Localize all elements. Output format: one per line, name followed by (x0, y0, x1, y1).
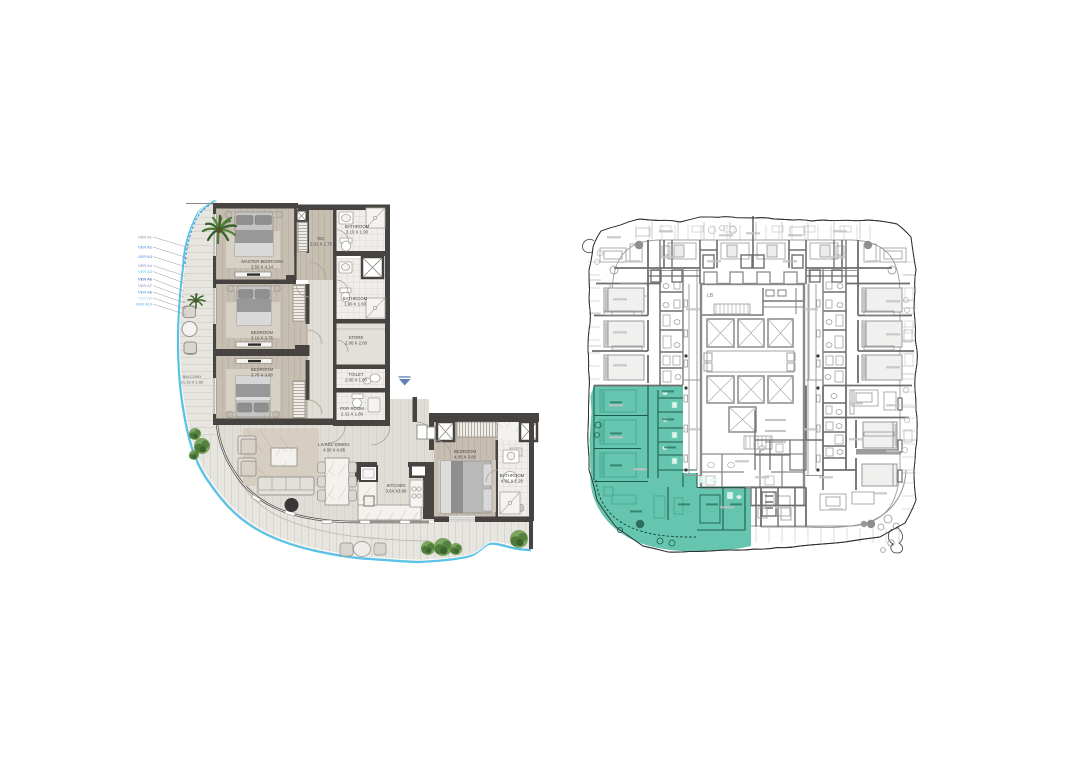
svg-text:VER A5: VER A5 (138, 269, 153, 274)
svg-text:VER A1: VER A1 (138, 235, 153, 240)
svg-text:MASTER BEDROOM: MASTER BEDROOM (241, 259, 283, 264)
svg-text:VER A3: VER A3 (138, 254, 153, 259)
svg-text:VER A7: VER A7 (138, 283, 153, 288)
svg-text:VER A6: VER A6 (138, 277, 153, 282)
svg-text:2.00 X 1.00: 2.00 X 1.00 (345, 378, 368, 383)
svg-text:21.10 X 1.60: 21.10 X 1.60 (181, 380, 204, 385)
svg-text:3.64 X3.80: 3.64 X3.80 (386, 489, 407, 494)
svg-text:VER A2: VER A2 (138, 245, 153, 250)
svg-text:LIVING/ DINING: LIVING/ DINING (318, 442, 350, 447)
svg-text:2.31 X 1.80: 2.31 X 1.80 (341, 412, 364, 417)
svg-text:KITCHEN: KITCHEN (387, 483, 406, 488)
svg-text:2.01 X 1.75: 2.01 X 1.75 (310, 242, 333, 247)
svg-text:4.00 X 1.20: 4.00 X 1.20 (501, 479, 524, 484)
svg-text:VER A10: VER A10 (136, 302, 153, 307)
svg-text:TOILET: TOILET (349, 372, 364, 377)
svg-text:VER A9: VER A9 (138, 296, 153, 301)
svg-text:STORE: STORE (349, 335, 364, 340)
svg-text:VER A8: VER A8 (138, 290, 153, 295)
svg-text:BEDROOM: BEDROOM (454, 449, 477, 454)
svg-text:2.00 X 2.60: 2.00 X 2.60 (345, 341, 368, 346)
svg-text:3.10 X 1.90: 3.10 X 1.90 (346, 230, 369, 235)
svg-text:BEDROOM: BEDROOM (251, 367, 274, 372)
svg-text:WC: WC (317, 236, 324, 241)
svg-text:BEDROOM: BEDROOM (251, 330, 274, 335)
svg-text:3.75 X 3.80: 3.75 X 3.80 (251, 373, 274, 378)
svg-text:BATHROOM: BATHROOM (345, 224, 370, 229)
svg-text:4.00 X 4.85: 4.00 X 4.85 (323, 448, 346, 453)
svg-text:LB: LB (707, 293, 714, 299)
svg-text:4.00 X 3.80: 4.00 X 3.80 (454, 455, 477, 460)
svg-text:1.90 X 1.60: 1.90 X 1.60 (344, 302, 367, 307)
svg-text:BATHROOM: BATHROOM (500, 473, 525, 478)
svg-text:PDR ROOM: PDR ROOM (340, 406, 364, 411)
svg-text:BATHROOM: BATHROOM (343, 296, 368, 301)
svg-text:3.50 X 4.14: 3.50 X 4.14 (251, 265, 274, 270)
svg-text:VER A4: VER A4 (138, 263, 153, 268)
svg-text:3.10 X 3.75: 3.10 X 3.75 (251, 336, 274, 341)
svg-text:BALCONY: BALCONY (182, 374, 201, 379)
